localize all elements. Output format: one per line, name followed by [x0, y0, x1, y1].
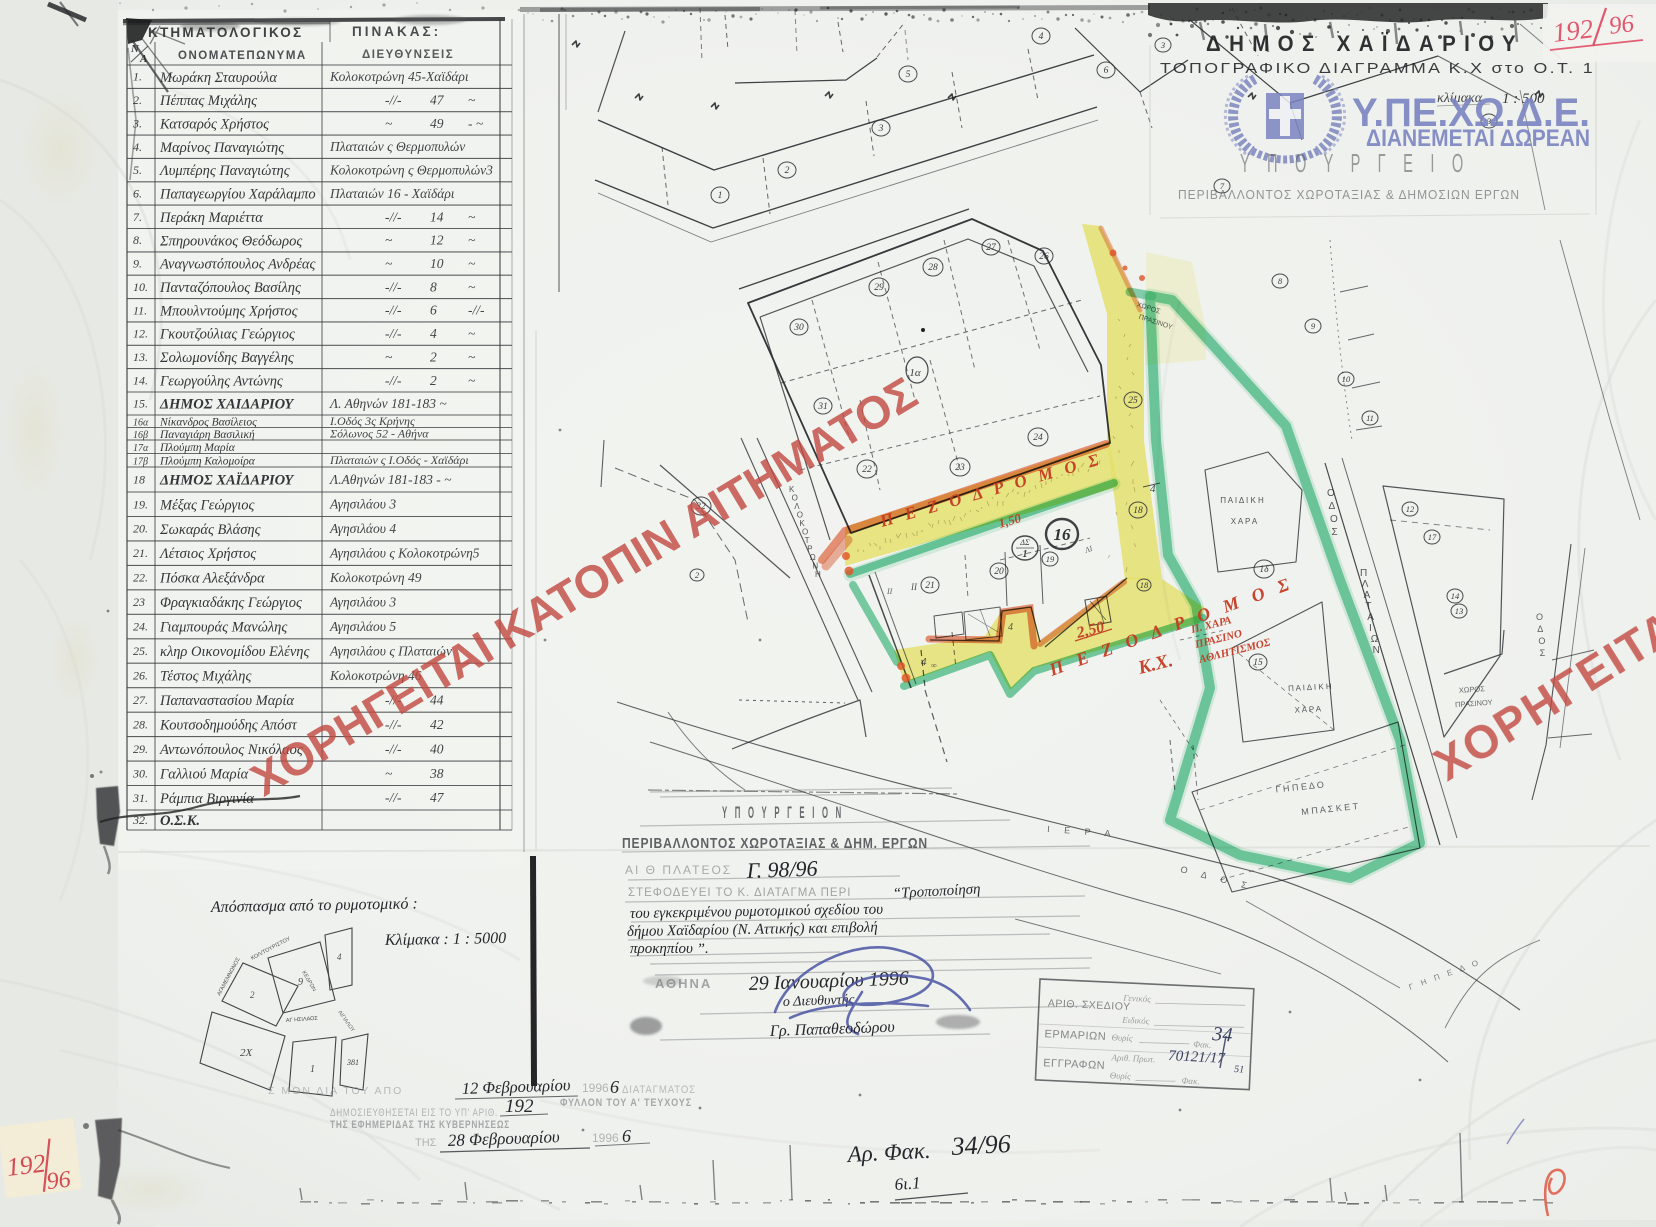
svg-text:28.: 28.: [133, 717, 148, 731]
svg-text:12: 12: [1406, 504, 1415, 514]
svg-text:2: 2: [250, 990, 255, 1000]
svg-text:31.: 31.: [132, 791, 148, 805]
svg-text:2: 2: [430, 349, 437, 364]
svg-text:20.: 20.: [133, 522, 148, 536]
svg-text:4: 4: [1008, 622, 1013, 633]
svg-text:42: 42: [430, 717, 444, 732]
svg-text:3: 3: [878, 124, 884, 134]
svg-text:ΔΗΜΟΣΙΕΥΘΗΣΕΤΑΙ ΕΙΣ ΤΟ ΥΠ' ΑΡΙ: ΔΗΜΟΣΙΕΥΘΗΣΕΤΑΙ ΕΙΣ ΤΟ ΥΠ' ΑΡΙΘ.: [330, 1107, 498, 1119]
svg-text:-//-: -//-: [385, 741, 402, 756]
svg-text:1δ: 1δ: [1259, 565, 1269, 575]
svg-text:Α: Α: [1364, 590, 1371, 601]
svg-text:Λέτσιος Χρήστος: Λέτσιος Χρήστος: [158, 546, 256, 562]
svg-text:κληρ Οικονομίδου Ελένης: κληρ Οικονομίδου Ελένης: [160, 644, 309, 660]
svg-text:27: 27: [986, 243, 997, 253]
svg-text:Α: Α: [139, 53, 147, 65]
svg-text:Κατσαρός Χρήστος: Κατσαρός Χρήστος: [159, 116, 269, 132]
svg-text:29: 29: [874, 283, 884, 293]
svg-text:7.: 7.: [133, 210, 142, 224]
svg-text:18: 18: [1140, 580, 1149, 590]
svg-text:16β: 16β: [133, 430, 148, 441]
svg-text:4: 4: [430, 326, 437, 341]
svg-text:8: 8: [430, 279, 437, 294]
svg-text:6: 6: [622, 1126, 631, 1146]
svg-text:6: 6: [610, 1077, 619, 1097]
svg-text:-//-: -//-: [385, 93, 402, 108]
svg-text:5: 5: [906, 70, 911, 80]
svg-text:Α: Α: [1367, 612, 1374, 623]
svg-text:1996: 1996: [582, 1081, 609, 1095]
svg-text:Η: Η: [815, 570, 821, 579]
svg-text:26.: 26.: [133, 668, 148, 682]
svg-text:Λ.Αθηνών 181-183 - ~: Λ.Αθηνών 181-183 - ~: [328, 472, 452, 487]
svg-text:Κολοκοτρώνη ς Θερμοπυλών3: Κολοκοτρώνη ς Θερμοπυλών3: [329, 163, 493, 178]
svg-text:192: 192: [505, 1096, 534, 1117]
svg-text:Λυμπέρης Παναγιώτης: Λυμπέρης Παναγιώτης: [158, 163, 290, 179]
svg-text:2: 2: [785, 166, 790, 176]
svg-text:Φακ.: Φακ.: [1193, 1039, 1212, 1050]
svg-text:ΚΤΗΜΑΤΟΛΟΓΙΚΟΣ: ΚΤΗΜΑΤΟΛΟΓΙΚΟΣ: [148, 25, 303, 40]
svg-text:-//-: -//-: [385, 790, 402, 805]
svg-text:15: 15: [1253, 658, 1263, 668]
svg-text:Κλίμακα : 1 : 5000: Κλίμακα : 1 : 5000: [384, 930, 506, 949]
svg-text:22: 22: [862, 465, 872, 475]
svg-text:28 Φεβρουαρίου: 28 Φεβρουαρίου: [447, 1127, 560, 1150]
svg-text:49: 49: [430, 116, 444, 131]
svg-text:ΠΙΝΑΚΑΣ:: ΠΙΝΑΚΑΣ:: [352, 24, 441, 39]
svg-text:34/96: 34/96: [950, 1129, 1012, 1161]
svg-text:4: 4: [337, 952, 342, 962]
svg-text:Πλούμπη Καλομοίρα: Πλούμπη Καλομοίρα: [159, 455, 256, 467]
svg-text:Αγησιλάου 3: Αγησιλάου 3: [329, 497, 396, 512]
svg-text:Σ: Σ: [1540, 648, 1546, 658]
svg-text:20: 20: [994, 567, 1004, 577]
svg-text:2: 2: [430, 373, 437, 388]
svg-text:Σόλωνος 52 - Αθήνα: Σόλωνος 52 - Αθήνα: [329, 427, 429, 441]
svg-text:96: 96: [45, 1167, 72, 1196]
svg-text:Παπαγεωργίου Χαράλαμπο: Παπαγεωργίου Χαράλαμπο: [159, 187, 316, 203]
svg-text:Μέξας Γεώργιος: Μέξας Γεώργιος: [159, 497, 255, 513]
svg-text:ΔΙΑΤΑΓΜΑΤΟΣ: ΔΙΑΤΑΓΜΑΤΟΣ: [622, 1084, 696, 1096]
svg-text:17: 17: [1428, 532, 1437, 542]
svg-text:29.: 29.: [133, 742, 148, 756]
svg-text:Αριθ. Πρωτ.: Αριθ. Πρωτ.: [1110, 1052, 1155, 1064]
svg-text:10.: 10.: [133, 280, 148, 294]
svg-text:18: 18: [133, 473, 145, 487]
svg-text:28: 28: [928, 263, 938, 273]
svg-text:11: 11: [1366, 413, 1374, 423]
svg-text:10: 10: [430, 256, 444, 271]
svg-text:Κουτσοδημούδης Απόστ: Κουτσοδημούδης Απόστ: [159, 717, 298, 733]
svg-text:15.: 15.: [133, 397, 148, 411]
svg-text:Πλούμπη Μαρία: Πλούμπη Μαρία: [159, 442, 236, 454]
svg-text:Χ Α Ρ Α: Χ Α Ρ Α: [1294, 704, 1322, 714]
svg-text:Υ Π Ο Υ Ρ Γ Ε Ι Ο: Υ Π Ο Υ Ρ Γ Ε Ι Ο: [1240, 148, 1470, 178]
svg-text:Παναγιάρη Βασιλική: Παναγιάρη Βασιλική: [159, 429, 255, 441]
svg-text:Μπουλντούμης Χρήστος: Μπουλντούμης Χρήστος: [159, 303, 298, 319]
svg-text:~: ~: [385, 116, 393, 131]
svg-text:-//-: -//-: [385, 373, 402, 388]
svg-text:Ειδικός: Ειδικός: [1121, 1015, 1150, 1026]
svg-text:Μωράκη Σταυρούλα: Μωράκη Σταυρούλα: [159, 70, 277, 86]
svg-text:Πλαταιών 16 - Χαϊδάρι: Πλαταιών 16 - Χαϊδάρι: [329, 186, 455, 201]
svg-text:12.: 12.: [133, 327, 148, 341]
svg-text:ΑΙ Θ ΠΛΑΤΕΟΣ: ΑΙ Θ ΠΛΑΤΕΟΣ: [625, 863, 732, 877]
svg-text:-//-: -//-: [385, 303, 402, 318]
svg-text:ΧΩΡΟΣ: ΧΩΡΟΣ: [1458, 684, 1485, 695]
svg-text:14: 14: [430, 209, 444, 224]
svg-text:Πλαταιών ς Ι.Οδός - Χαϊδάρι: Πλαταιών ς Ι.Οδός - Χαϊδάρι: [329, 453, 469, 467]
svg-text:Ω: Ω: [1371, 634, 1379, 645]
svg-text:17β: 17β: [133, 456, 148, 467]
svg-text:Λ: Λ: [1362, 579, 1369, 590]
svg-text:1: 1: [718, 191, 723, 201]
svg-text:-//-: -//-: [468, 303, 485, 318]
svg-text:26: 26: [1039, 252, 1049, 262]
svg-text:~: ~: [385, 233, 393, 248]
svg-text:Π Α Ι Δ Ι Κ Η: Π Α Ι Δ Ι Κ Η: [1220, 496, 1264, 505]
svg-text:1: 1: [1023, 549, 1028, 560]
svg-text:25: 25: [1128, 396, 1138, 406]
svg-text:Ο.Σ.Κ.: Ο.Σ.Κ.: [160, 813, 200, 829]
svg-text:16α: 16α: [133, 417, 149, 428]
svg-text:34: 34: [1211, 1023, 1233, 1046]
svg-text:9: 9: [298, 977, 303, 988]
svg-text:2Χ: 2Χ: [240, 1047, 254, 1059]
svg-text:ΠΕΡΙΒΑΛΛΟΝΤΟΣ ΧΩΡΟΤΑΞΙΑΣ & Δ: ΠΕΡΙΒΑΛΛΟΝΤΟΣ ΧΩΡΟΤΑΞΙΑΣ & ΔΗΜ. ΕΡΓΩΝ: [622, 835, 928, 852]
svg-text:4: 4: [921, 656, 927, 668]
svg-text:Γενικός: Γενικός: [1122, 993, 1151, 1004]
svg-text:1α: 1α: [909, 367, 921, 379]
svg-text:Γαλλιού Μαρία: Γαλλιού Μαρία: [159, 766, 249, 782]
svg-text:Φακ.: Φακ.: [1181, 1076, 1200, 1087]
svg-text:Γκουτζούλιας Γεώργιος: Γκουτζούλιας Γεώργιος: [159, 327, 295, 343]
svg-text:~: ~: [385, 766, 393, 781]
svg-text:14: 14: [1451, 591, 1460, 601]
svg-text:Δ: Δ: [1537, 624, 1543, 634]
svg-text:192: 192: [5, 1148, 47, 1182]
svg-text:18: 18: [1133, 506, 1143, 516]
svg-text:ΤΗΣ: ΤΗΣ: [415, 1137, 437, 1149]
svg-text:16: 16: [1054, 525, 1072, 544]
svg-text:Ο: Ο: [1327, 488, 1335, 499]
svg-text:1: 1: [310, 1064, 315, 1075]
svg-text:Π: Π: [1360, 568, 1367, 579]
svg-text:8.: 8.: [133, 233, 142, 247]
svg-text:47: 47: [430, 93, 445, 108]
svg-text:38: 38: [429, 766, 444, 781]
svg-text:Σολωμονίδης Βαγγέλης: Σολωμονίδης Βαγγέλης: [159, 350, 294, 366]
svg-text:Ο: Ο: [1538, 636, 1545, 646]
svg-text:~: ~: [468, 279, 476, 294]
svg-text:Αρ. Φακ.: Αρ. Φακ.: [845, 1138, 931, 1167]
svg-text:-//-: -//-: [385, 326, 402, 341]
svg-text:- ~: - ~: [468, 116, 484, 131]
svg-text:19.: 19.: [133, 497, 148, 511]
svg-text:ΦΥΛΛΟΝ ΤΟΥ Α' ΤΕΥΧΟΥΣ: ΦΥΛΛΟΝ ΤΟΥ Α' ΤΕΥΧΟΥΣ: [560, 1097, 692, 1109]
svg-text:ΔΗΜΟΣ ΧΑΙΔΑΡΙΟΥ: ΔΗΜΟΣ ΧΑΙΔΑΡΙΟΥ: [159, 397, 294, 413]
svg-text:~: ~: [468, 256, 476, 271]
svg-text:Αγησιλάου 5: Αγησιλάου 5: [329, 619, 396, 634]
svg-text:Περάκη Μαριέττα: Περάκη Μαριέττα: [159, 210, 263, 226]
svg-text:3: 3: [1160, 40, 1165, 50]
svg-text:~: ~: [468, 93, 476, 108]
svg-text:12 Φεβρουαρίου: 12 Φεβρουαρίου: [461, 1075, 571, 1098]
svg-text:~: ~: [468, 326, 476, 341]
svg-text:30.: 30.: [132, 766, 148, 780]
svg-text:17α: 17α: [133, 443, 149, 454]
svg-text:προκηπίου ”.: προκηπίου ”.: [630, 941, 709, 957]
svg-text:1.: 1.: [133, 70, 142, 84]
svg-text:70121/17: 70121/17: [1168, 1048, 1227, 1067]
svg-text:Ι: Ι: [1369, 623, 1372, 634]
svg-text:Υ Π Ο Υ Ρ Γ Ε Ι Ο Ν: Υ Π Ο Υ Ρ Γ Ε Ι Ο Ν: [722, 803, 844, 822]
svg-text:Μαρίνος Παναγιώτης: Μαρίνος Παναγιώτης: [159, 140, 284, 156]
svg-text:40: 40: [430, 741, 444, 756]
svg-text:6: 6: [430, 303, 437, 318]
svg-text:Απόσπασμα από το ρυμοτομ: Απόσπασμα από το ρυμοτομικό :: [210, 895, 418, 916]
svg-text:14.: 14.: [133, 373, 148, 387]
svg-text:13.: 13.: [133, 350, 148, 364]
svg-text:-//-: -//-: [385, 279, 402, 294]
svg-text:Σωκαράς Βλάσης: Σωκαράς Βλάσης: [159, 522, 261, 538]
svg-text:4.: 4.: [133, 140, 142, 154]
svg-text:ΔΗΜΟΣ ΧΑΪΔΑΡΙΟΥ: ΔΗΜΟΣ ΧΑΪΔΑΡΙΟΥ: [159, 473, 294, 489]
svg-text:~: ~: [468, 233, 476, 248]
svg-text:Γ. 98/96: Γ. 98/96: [745, 856, 818, 883]
svg-text:ΣΤΕΦΟΔΕΥΕΙ ΤΟ Κ. ΔΙΑΤΑΓΜΑ ΠΕΡΙ: ΣΤΕΦΟΔΕΥΕΙ ΤΟ Κ. ΔΙΑΤΑΓΜΑ ΠΕΡΙ: [628, 887, 851, 899]
svg-text:Παπαναστασίου Μαρία: Παπαναστασίου Μαρία: [159, 693, 294, 709]
svg-text:ΔΣ: ΔΣ: [1019, 538, 1030, 547]
svg-text:~: ~: [468, 373, 476, 388]
svg-text:Κολοκοτρώνη 49: Κολοκοτρώνη 49: [329, 570, 422, 585]
svg-text:381: 381: [346, 1058, 359, 1067]
svg-text:23: 23: [133, 595, 145, 609]
svg-text:192: 192: [1551, 13, 1595, 48]
svg-text:23: 23: [955, 463, 965, 473]
svg-text:-//-: -//-: [385, 209, 402, 224]
svg-text:Ο: Ο: [1330, 514, 1338, 525]
svg-text:Αναγνωστόπουλος Ανδρέας: Αναγνωστόπουλος Ανδρέας: [159, 257, 316, 273]
svg-text:ΔΗΜΟΣ ΧΑΪΔΑΡΙΟΥ: ΔΗΜΟΣ ΧΑΪΔΑΡΙΟΥ: [1206, 31, 1524, 56]
svg-text:ΟΝΟΜΑΤΕΠΩΝΥΜΑ: ΟΝΟΜΑΤΕΠΩΝΥΜΑ: [178, 50, 307, 62]
svg-text:~: ~: [468, 209, 476, 224]
svg-text:Θυρίς: Θυρίς: [1110, 1070, 1132, 1081]
svg-text:21: 21: [925, 581, 935, 591]
svg-text:Πλαταιών ς Θερμοπυλών: Πλαταιών ς Θερμοπυλών: [329, 139, 465, 154]
svg-text:ΠΕΡΙΒΑΛΛΟΝΤΟΣ ΧΩΡΟΤΑΞΙΑΣ &: ΠΕΡΙΒΑΛΛΟΝΤΟΣ ΧΩΡΟΤΑΞΙΑΣ & ΔΗΜΟΣΙΩΝ ΕΡΓΩ…: [1178, 188, 1520, 202]
svg-text:4: 4: [1039, 32, 1044, 42]
svg-text:6.: 6.: [133, 186, 142, 200]
svg-text:Λ. Αθηνών 181-183 ~: Λ. Αθηνών 181-183 ~: [328, 396, 447, 411]
svg-text:Αγησιλάου 4: Αγησιλάου 4: [329, 521, 396, 536]
svg-text:Χ Α Ρ Α: Χ Α Ρ Α: [1231, 517, 1258, 526]
svg-text:11.: 11.: [133, 303, 147, 317]
svg-text:21.: 21.: [133, 546, 148, 560]
svg-text:9.: 9.: [133, 257, 142, 271]
svg-text:Αγησιλάου 3: Αγησιλάου 3: [329, 595, 396, 610]
svg-text:22.: 22.: [133, 571, 148, 585]
svg-text:∞: ∞: [931, 661, 937, 670]
svg-text:2.: 2.: [133, 93, 142, 107]
svg-text:Νίκανδρος Βασίλειος: Νίκανδρος Βασίλειος: [159, 416, 257, 428]
svg-text:~: ~: [385, 256, 393, 271]
svg-text:Πέππας Μιχάλης: Πέππας Μιχάλης: [159, 93, 257, 109]
svg-text:Σπηρουνάκος Θεόδωρος: Σπηρουνάκος Θεόδωρος: [159, 233, 302, 249]
svg-text:ΔΙΕΥΘΥΝΣΕΙΣ: ΔΙΕΥΘΥΝΣΕΙΣ: [362, 49, 454, 61]
svg-text:Δ: Δ: [1329, 501, 1336, 512]
svg-text:~: ~: [385, 349, 393, 364]
svg-text:Αγησιλάου ς Κολοκοτρώνη5: Αγησιλάου ς Κολοκοτρώνη5: [329, 546, 480, 561]
svg-text:Σ ΜΟΝ ΔΙΑ ΤΟΥ ΑΠΟ: Σ ΜΟΝ ΔΙΑ ΤΟΥ ΑΠΟ: [268, 1085, 403, 1097]
svg-text:13: 13: [1455, 606, 1464, 616]
svg-text:Γεωργούλης Αντώνης: Γεωργούλης Αντώνης: [159, 373, 283, 389]
svg-text:51: 51: [1234, 1064, 1245, 1076]
svg-text:Πανταζόπουλος Βασίλης: Πανταζόπουλος Βασίλης: [159, 280, 301, 296]
svg-text:3.: 3.: [132, 116, 142, 130]
svg-text:25.: 25.: [133, 644, 148, 658]
svg-text:Κολοκοτρώνη 45-Χαϊδάρι: Κολοκοτρώνη 45-Χαϊδάρι: [329, 69, 469, 84]
svg-text:12: 12: [430, 233, 444, 248]
svg-text:10: 10: [1342, 374, 1351, 384]
svg-text:ΙΙ: ΙΙ: [886, 587, 893, 596]
svg-text:24.: 24.: [133, 620, 148, 634]
svg-text:96: 96: [1607, 10, 1636, 40]
svg-text:5.: 5.: [133, 163, 142, 177]
svg-text:Τ: Τ: [1365, 601, 1371, 612]
svg-text:Πόσκα Αλεξάνδρα: Πόσκα Αλεξάνδρα: [159, 571, 265, 587]
svg-text:ΙΙ: ΙΙ: [910, 582, 918, 592]
svg-text:19: 19: [1046, 554, 1055, 564]
svg-text:Ο: Ο: [1536, 612, 1543, 622]
svg-text:27.: 27.: [133, 693, 148, 707]
svg-text:24: 24: [1033, 433, 1043, 443]
svg-text:1996: 1996: [592, 1131, 619, 1145]
svg-text:Φραγκιαδάκης Γεώργιος: Φραγκιαδάκης Γεώργιος: [160, 595, 302, 611]
svg-text:6ι.1: 6ι.1: [894, 1173, 921, 1194]
svg-text:Τέστος Μιχάλης: Τέστος Μιχάλης: [160, 669, 251, 685]
svg-text:Ν: Ν: [130, 43, 140, 55]
svg-text:Θυρίς: Θυρίς: [1111, 1032, 1133, 1043]
svg-text:6: 6: [1104, 66, 1109, 76]
svg-text:Γιαμπουράς Μανώλης: Γιαμπουράς Μανώλης: [159, 620, 287, 636]
svg-text:~: ~: [468, 349, 476, 364]
svg-text:ΤΟΠΟΓΡΑΦΙΚΟ ΔΙΑΓΡΑΜΜΑ Κ.Χ σ: ΤΟΠΟΓΡΑΦΙΚΟ ΔΙΑΓΡΑΜΜΑ Κ.Χ στο Ο.Τ. 1: [1160, 60, 1595, 77]
svg-text:47: 47: [430, 790, 445, 805]
svg-text:30: 30: [793, 323, 804, 333]
